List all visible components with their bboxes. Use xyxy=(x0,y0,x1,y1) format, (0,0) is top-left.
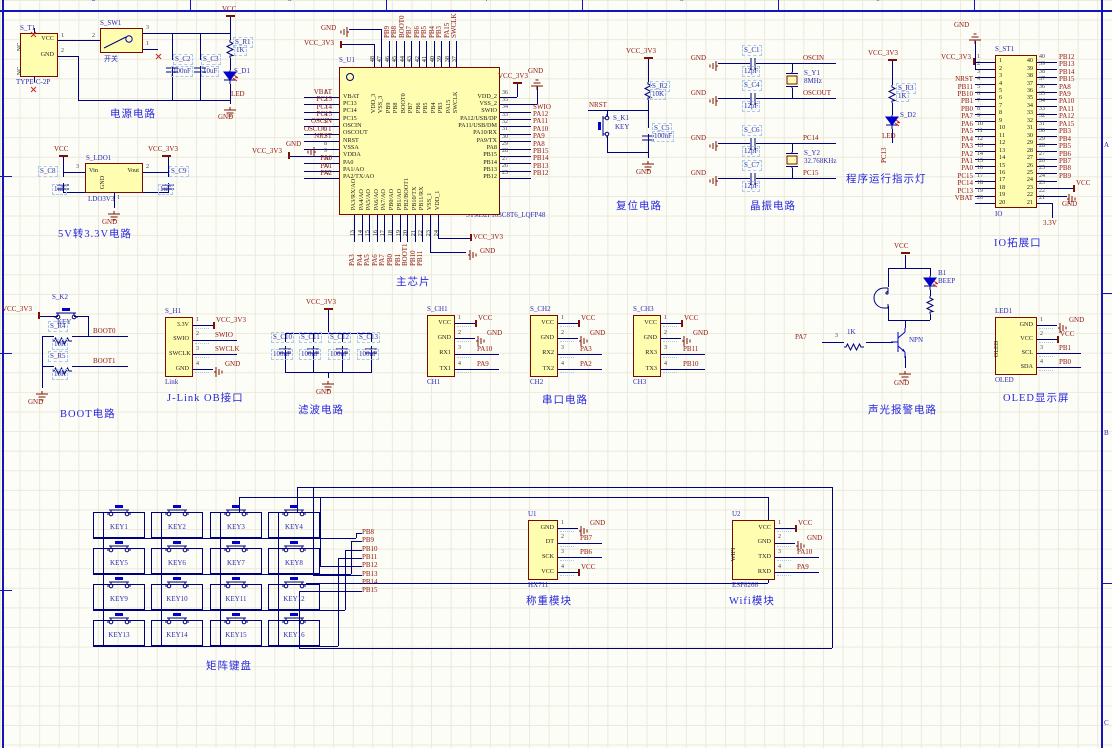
designator[interactable]: S_Y2 xyxy=(804,150,820,157)
wire[interactable] xyxy=(558,543,578,544)
pin-number[interactable]: 9 xyxy=(977,113,980,119)
designator[interactable]: S_Y1 xyxy=(804,70,820,77)
net-label[interactable]: BOOT1 xyxy=(93,358,116,365)
wire[interactable] xyxy=(72,336,88,337)
pin-number[interactable]: 22 xyxy=(1039,188,1045,194)
wire[interactable] xyxy=(775,572,795,573)
pin-number[interactable]: 1 xyxy=(778,520,781,526)
pin-number[interactable]: 1 xyxy=(196,317,199,323)
pin-name[interactable]: TX2 xyxy=(534,366,554,372)
wire[interactable] xyxy=(756,98,836,99)
power-label[interactable]: GND xyxy=(1062,201,1077,208)
pin-name[interactable]: PB0/AO xyxy=(389,189,395,210)
pin-name[interactable]: 3.3V xyxy=(169,322,189,328)
wire[interactable] xyxy=(58,56,78,57)
value-label[interactable]: 1uF xyxy=(160,186,171,193)
key-button[interactable]: KEY3 xyxy=(214,524,258,531)
designator[interactable]: S_ST1 xyxy=(995,46,1014,53)
pin-number[interactable]: 37 xyxy=(1039,76,1045,82)
pin-number[interactable]: 28 xyxy=(1039,143,1045,149)
wire[interactable] xyxy=(607,152,649,153)
value-label[interactable]: 100nF xyxy=(359,351,377,358)
wire[interactable] xyxy=(558,572,578,573)
pin-number[interactable]: 43 xyxy=(407,56,413,62)
pin-name[interactable]: 21 xyxy=(1007,200,1033,206)
power-bar[interactable] xyxy=(475,320,477,327)
designator[interactable]: S_D2 xyxy=(900,112,916,119)
value-label[interactable]: KEY xyxy=(615,124,629,131)
wire[interactable] xyxy=(517,84,518,97)
key-button[interactable]: KEY8 xyxy=(272,560,316,567)
wire[interactable] xyxy=(558,354,578,355)
designator[interactable]: S_CH3 xyxy=(633,306,654,313)
wire[interactable] xyxy=(500,178,531,179)
wire[interactable] xyxy=(362,215,363,242)
power-bar[interactable] xyxy=(38,312,40,319)
wire[interactable] xyxy=(888,268,889,287)
pin-number[interactable]: 1 xyxy=(561,315,564,321)
push-button-symbol[interactable] xyxy=(107,504,131,516)
wire[interactable] xyxy=(396,41,397,67)
pin-number[interactable]: 20 xyxy=(977,195,983,201)
key-button[interactable]: KEY14 xyxy=(155,632,199,639)
pin-number[interactable]: 4 xyxy=(561,361,564,367)
pin-number[interactable]: 23 xyxy=(1039,180,1045,186)
wire[interactable] xyxy=(455,369,475,370)
wire[interactable] xyxy=(230,58,231,70)
push-button-symbol[interactable] xyxy=(224,504,248,516)
gnd-symbol[interactable] xyxy=(322,378,334,388)
push-button-symbol[interactable] xyxy=(598,114,610,138)
designator[interactable]: S_C5 xyxy=(654,125,670,132)
capacitor-symbol[interactable] xyxy=(642,128,654,134)
net-label[interactable]: PB11 xyxy=(683,346,698,353)
wire[interactable] xyxy=(558,338,578,339)
gnd-symbol[interactable] xyxy=(708,58,718,68)
part-number[interactable]: TYPE-C-2P xyxy=(16,79,50,86)
pin-name[interactable]: 37 xyxy=(1007,81,1033,87)
pin-number[interactable]: 2 xyxy=(778,534,781,540)
pin-number[interactable]: 4 xyxy=(196,361,199,367)
wire[interactable] xyxy=(558,369,578,370)
section-title[interactable]: 声光报警电路 xyxy=(868,406,937,417)
pin-name[interactable]: SDA xyxy=(999,364,1033,370)
pin-name[interactable]: OSCIN xyxy=(343,123,362,129)
pin-name[interactable]: GND xyxy=(100,176,106,189)
pin-name[interactable]: SWCLK xyxy=(453,92,459,114)
pin-name[interactable]: NRST xyxy=(343,138,359,144)
pin-name[interactable]: 1 xyxy=(999,58,1002,64)
wire[interactable] xyxy=(661,369,681,370)
designator[interactable]: S_R1 xyxy=(235,39,251,46)
power-label[interactable]: VCC_3V3 xyxy=(2,306,32,313)
pin-name[interactable]: VCC xyxy=(431,320,451,326)
pin-number[interactable]: 17 xyxy=(380,230,386,236)
net-label[interactable]: SWCLK xyxy=(215,346,240,353)
value-label[interactable]: NPN xyxy=(909,337,923,344)
push-button-symbol[interactable] xyxy=(224,612,248,624)
pin-name[interactable]: Vout xyxy=(113,168,139,174)
pin-name[interactable]: PB15 xyxy=(402,152,497,158)
designator[interactable]: U1 xyxy=(528,511,537,518)
value-label[interactable]: 1uF xyxy=(54,186,65,193)
pin-name[interactable]: PC15 xyxy=(343,116,357,122)
power-bar[interactable] xyxy=(795,525,797,532)
power-label[interactable]: VCC xyxy=(581,564,595,571)
wire[interactable] xyxy=(78,56,79,100)
key-button[interactable]: KEY7 xyxy=(214,560,258,567)
pin-name[interactable]: PA1/AO xyxy=(343,167,364,173)
wire[interactable] xyxy=(88,316,89,336)
section-title[interactable]: OLED显示屏 xyxy=(1003,394,1070,405)
pin-number[interactable]: 24 xyxy=(433,230,439,236)
wire[interactable] xyxy=(1052,203,1053,218)
value-label[interactable]: 32.768KHz xyxy=(804,158,836,165)
pin-number[interactable]: 3 xyxy=(561,549,564,555)
pin-name[interactable]: 22 xyxy=(1007,192,1033,198)
pin-number[interactable]: 18 xyxy=(388,230,394,236)
wire[interactable] xyxy=(338,558,362,559)
pin-number[interactable]: 10 xyxy=(977,121,983,127)
net-label[interactable]: PB12 xyxy=(362,562,378,569)
wire[interactable] xyxy=(58,40,100,41)
pin-number[interactable]: 3 xyxy=(835,333,838,339)
wire[interactable] xyxy=(42,366,43,388)
key-button[interactable]: KEY16 xyxy=(272,632,316,639)
power-label[interactable]: GND xyxy=(1069,317,1084,324)
wire[interactable] xyxy=(354,215,355,242)
part-number[interactable]: IO xyxy=(995,211,1002,218)
pin-name[interactable]: PC14 xyxy=(343,108,357,114)
gnd-symbol[interactable] xyxy=(969,31,981,41)
pin-name[interactable]: 8 xyxy=(999,110,1002,116)
wire[interactable] xyxy=(441,41,442,67)
wire[interactable] xyxy=(411,41,412,67)
pin-name[interactable]: 11 xyxy=(999,133,1005,139)
power-label[interactable]: GND xyxy=(807,535,822,542)
pin-name[interactable]: PA11/USB/DM xyxy=(402,123,497,129)
wire[interactable] xyxy=(230,33,231,40)
pin-name[interactable]: Vin xyxy=(89,168,98,174)
key-button[interactable]: KEY4 xyxy=(272,524,316,531)
wire[interactable] xyxy=(905,320,906,328)
net-label[interactable]: PA9 xyxy=(477,361,489,368)
pin-number[interactable]: 15 xyxy=(977,158,983,164)
pin-name[interactable]: 7 xyxy=(999,103,1002,109)
power-label[interactable]: VCC_3V3 xyxy=(306,299,336,306)
pin-name[interactable]: TX3 xyxy=(637,366,657,372)
wire[interactable] xyxy=(88,366,128,367)
wire[interactable] xyxy=(866,342,893,343)
power-label[interactable]: VCC xyxy=(478,315,492,322)
value-label[interactable]: 1K xyxy=(898,93,907,100)
designator[interactable]: S_T1 xyxy=(20,25,35,32)
pin-name[interactable]: 15 xyxy=(999,163,1005,169)
pin-name[interactable]: 3 xyxy=(999,73,1002,79)
power-bar[interactable] xyxy=(888,59,897,61)
power-label[interactable]: VCC xyxy=(222,6,236,13)
value-label[interactable]: 10K xyxy=(652,91,664,98)
net-label[interactable]: PB8 xyxy=(362,529,374,536)
gnd-symbol[interactable] xyxy=(306,144,316,154)
net-label[interactable]: SWIO xyxy=(215,332,233,339)
net-label[interactable]: PA10 xyxy=(797,549,812,556)
wire[interactable] xyxy=(756,178,836,179)
resistor-symbol[interactable] xyxy=(644,82,652,100)
push-button-symbol[interactable] xyxy=(165,612,189,624)
wire[interactable] xyxy=(775,557,795,558)
wire[interactable] xyxy=(430,252,466,253)
key-button[interactable]: KEY13 xyxy=(97,632,141,639)
net-label[interactable]: 3.3V xyxy=(1043,220,1057,227)
wire[interactable] xyxy=(975,41,976,70)
wire[interactable] xyxy=(930,268,931,276)
power-label[interactable]: GND xyxy=(636,169,651,176)
net-label[interactable]: PB9 xyxy=(362,537,374,544)
resistor-symbol[interactable] xyxy=(52,362,72,370)
wire[interactable] xyxy=(63,156,64,172)
resistor-symbol[interactable] xyxy=(888,85,896,103)
push-button-symbol[interactable] xyxy=(282,576,306,588)
wire[interactable] xyxy=(578,354,602,355)
pin-name[interactable]: SWCLK xyxy=(169,351,189,357)
net-label[interactable]: BOOT0 xyxy=(93,328,116,335)
value-label[interactable]: 100nF xyxy=(301,351,319,358)
wire[interactable] xyxy=(905,255,906,268)
wire[interactable] xyxy=(349,29,381,30)
power-bar[interactable] xyxy=(578,320,580,327)
pin-name[interactable]: PB11/RX xyxy=(419,186,425,210)
value-label[interactable]: 10K xyxy=(54,371,66,378)
pin-name[interactable]: PA0 xyxy=(343,160,353,166)
power-bar[interactable] xyxy=(470,234,472,241)
wire[interactable] xyxy=(422,215,423,242)
pin-name[interactable]: VCC xyxy=(534,320,554,326)
pin-name[interactable]: PB7 xyxy=(408,103,414,114)
wire[interactable] xyxy=(63,172,85,173)
pin-number[interactable]: 41 xyxy=(422,56,428,62)
pin-name[interactable]: PA3/RX/AO xyxy=(351,179,357,210)
crystal-symbol[interactable] xyxy=(784,72,800,88)
part-number[interactable]: OLED xyxy=(995,377,1014,384)
pin-number[interactable]: 26 xyxy=(1039,158,1045,164)
pin-number[interactable]: 36 xyxy=(1039,84,1045,90)
net-label[interactable]: PB15 xyxy=(362,587,378,594)
power-bar[interactable] xyxy=(644,57,653,59)
wire[interactable] xyxy=(313,575,362,576)
pin-name[interactable]: 10 xyxy=(999,125,1005,131)
key-button[interactable]: KEY12 xyxy=(272,596,316,603)
pin-name[interactable]: 34 xyxy=(1007,103,1033,109)
pin-name[interactable]: 20 xyxy=(999,200,1005,206)
designator[interactable]: S_C4 xyxy=(744,82,760,89)
key-button[interactable]: KEY9 xyxy=(97,596,141,603)
wire[interactable] xyxy=(975,203,995,204)
wire[interactable] xyxy=(558,528,578,529)
push-button-symbol[interactable] xyxy=(165,540,189,552)
gnd-symbol[interactable] xyxy=(339,24,349,34)
power-label[interactable]: VCC xyxy=(894,243,908,250)
wire[interactable] xyxy=(756,63,836,64)
net-label[interactable]: PA10 xyxy=(477,346,492,353)
crystal-symbol[interactable] xyxy=(784,152,800,168)
pin-name[interactable]: SWIO xyxy=(169,336,189,342)
pin-number[interactable]: 1 xyxy=(977,54,980,60)
designator[interactable]: S_U1 xyxy=(339,57,355,64)
power-label[interactable]: GND xyxy=(480,248,495,255)
pin-name[interactable]: DT xyxy=(532,539,554,545)
designator[interactable]: S_SW1 xyxy=(100,20,121,27)
value-label[interactable]: 12pF xyxy=(744,148,758,155)
part-number[interactable]: CH1 xyxy=(427,379,440,386)
power-bar[interactable] xyxy=(1057,336,1059,343)
pin-number[interactable]: 30 xyxy=(1039,128,1045,134)
pin-number[interactable]: 2 xyxy=(561,330,564,336)
pin-name[interactable]: PB3 xyxy=(438,103,444,114)
pin-number[interactable]: 3 xyxy=(977,69,980,75)
wire[interactable] xyxy=(456,41,457,67)
key-button[interactable]: KEY11 xyxy=(214,596,258,603)
wire[interactable] xyxy=(588,110,648,111)
pin-name[interactable]: 14 xyxy=(999,155,1005,161)
pin-number[interactable]: 6 xyxy=(977,91,980,97)
push-button-symbol[interactable] xyxy=(107,612,131,624)
wire[interactable] xyxy=(775,528,795,529)
gnd-symbol[interactable] xyxy=(708,138,718,148)
pin-name[interactable]: 39 xyxy=(1007,66,1033,72)
pin-name[interactable]: RXD xyxy=(736,569,771,575)
wire[interactable] xyxy=(404,41,405,67)
pin-name[interactable]: 33 xyxy=(1007,110,1033,116)
section-title[interactable]: 矩阵键盘 xyxy=(206,662,252,673)
pin-number[interactable]: 3 xyxy=(1040,345,1043,351)
pin-name[interactable]: PA2/TX/AO xyxy=(343,174,374,180)
pin-number[interactable]: 2 xyxy=(561,534,564,540)
wire[interactable] xyxy=(230,16,231,33)
pin-number[interactable]: 4 xyxy=(778,564,781,570)
pin-number[interactable]: 35 xyxy=(1039,91,1045,97)
pin-number[interactable]: 2 xyxy=(977,61,980,67)
power-label[interactable]: VCC_3V3 xyxy=(216,317,246,324)
designator[interactable]: S_C8 xyxy=(40,168,56,175)
pin-number[interactable]: 2 xyxy=(196,331,199,337)
pin-name[interactable]: 12 xyxy=(999,140,1005,146)
wire[interactable] xyxy=(792,144,793,152)
wire[interactable] xyxy=(475,354,499,355)
switch-lever-icon[interactable] xyxy=(104,36,128,49)
power-label[interactable]: VCC xyxy=(1076,180,1090,187)
pin-number[interactable]: 4 xyxy=(977,76,980,82)
section-title[interactable]: IO拓展口 xyxy=(994,239,1042,250)
pin-name[interactable]: GND xyxy=(736,539,771,545)
power-label[interactable]: VCC_3V3 xyxy=(304,40,334,47)
wire[interactable] xyxy=(193,369,213,370)
pin-number[interactable]: 5 xyxy=(977,84,980,90)
pin-name[interactable]: 28 xyxy=(1007,148,1033,154)
net-label[interactable]: NRST xyxy=(929,76,973,83)
value-label[interactable]: 1K xyxy=(847,329,856,336)
pin-name[interactable]: VCC xyxy=(637,320,657,326)
wire[interactable] xyxy=(407,215,408,242)
wire[interactable] xyxy=(792,168,793,178)
push-button-symbol[interactable] xyxy=(107,540,131,552)
power-label[interactable]: GND xyxy=(102,219,117,226)
value-label[interactable]: 12pF xyxy=(744,68,758,75)
section-title[interactable]: BOOT电路 xyxy=(60,410,116,421)
value-label[interactable]: 10uF xyxy=(203,68,217,75)
wire[interactable] xyxy=(400,215,401,242)
wire[interactable] xyxy=(795,572,819,573)
wire[interactable] xyxy=(718,98,750,99)
section-title[interactable]: 电源电路 xyxy=(110,110,156,121)
pin-name[interactable]: VDDA xyxy=(343,152,361,158)
pin-number[interactable]: 2 xyxy=(146,164,149,170)
pin-number[interactable]: 14 xyxy=(357,230,363,236)
designator[interactable]: S_C12 xyxy=(330,334,349,341)
wire[interactable] xyxy=(832,487,833,648)
pin-number[interactable]: 11 xyxy=(977,128,983,134)
pin-number[interactable]: 25 xyxy=(502,170,508,176)
net-label[interactable]: PC14 xyxy=(803,135,819,142)
net-label[interactable]: NRST xyxy=(589,102,607,109)
pin-number[interactable]: 18 xyxy=(977,180,983,186)
pin-name[interactable]: GND xyxy=(30,52,54,58)
buzzer-symbol[interactable] xyxy=(874,287,890,309)
capacitor-symbol[interactable] xyxy=(307,341,319,347)
pin-name[interactable]: PB12 xyxy=(402,174,497,180)
gnd-symbol[interactable] xyxy=(579,333,589,343)
part-number[interactable]: ESP8266 xyxy=(732,582,758,589)
pin-name[interactable]: PA8 xyxy=(402,145,497,151)
pin-name[interactable]: 40 xyxy=(1007,58,1033,64)
wire[interactable] xyxy=(475,369,499,370)
pin-name[interactable]: 18 xyxy=(999,185,1005,191)
wire[interactable] xyxy=(320,497,321,566)
pin-number[interactable]: 2 xyxy=(458,330,461,336)
pin-number[interactable]: 1 xyxy=(61,33,64,39)
gnd-symbol[interactable] xyxy=(108,208,120,218)
wire[interactable] xyxy=(775,543,795,544)
pin-number[interactable]: 34 xyxy=(1039,98,1045,104)
push-button-symbol[interactable] xyxy=(282,612,306,624)
power-label[interactable]: GND xyxy=(286,141,301,148)
pin-name[interactable]: 35 xyxy=(1007,95,1033,101)
pin-number[interactable]: 36 xyxy=(502,90,508,96)
pin-number[interactable]: 26 xyxy=(502,163,508,169)
pin-name[interactable]: 32 xyxy=(1007,118,1033,124)
power-label[interactable]: GND xyxy=(894,380,909,387)
wire[interactable] xyxy=(304,178,339,179)
pin-name[interactable]: PB2/BOOT1 xyxy=(404,178,410,210)
net-label[interactable]: PB10 xyxy=(683,361,699,368)
value-label[interactable]: 1K xyxy=(236,47,245,54)
section-title[interactable]: J-Link OB接口 xyxy=(167,394,244,405)
pin-name[interactable]: PB13 xyxy=(402,167,497,173)
pin-number[interactable]: 3 xyxy=(76,164,79,170)
wire[interactable] xyxy=(392,215,393,242)
wire[interactable] xyxy=(648,59,649,82)
net-label[interactable]: PB0 xyxy=(1059,359,1071,366)
led-symbol[interactable] xyxy=(884,115,901,129)
designator[interactable]: U2 xyxy=(732,511,741,518)
power-bar[interactable] xyxy=(162,155,171,157)
push-button-symbol[interactable] xyxy=(224,540,248,552)
net-label[interactable]: PB15 xyxy=(1059,76,1075,83)
wire[interactable] xyxy=(143,33,230,34)
pin-name[interactable]: GND xyxy=(637,335,657,341)
pin-name[interactable]: PA4/AO xyxy=(358,189,364,210)
pin-name[interactable]: 17 xyxy=(999,177,1005,183)
